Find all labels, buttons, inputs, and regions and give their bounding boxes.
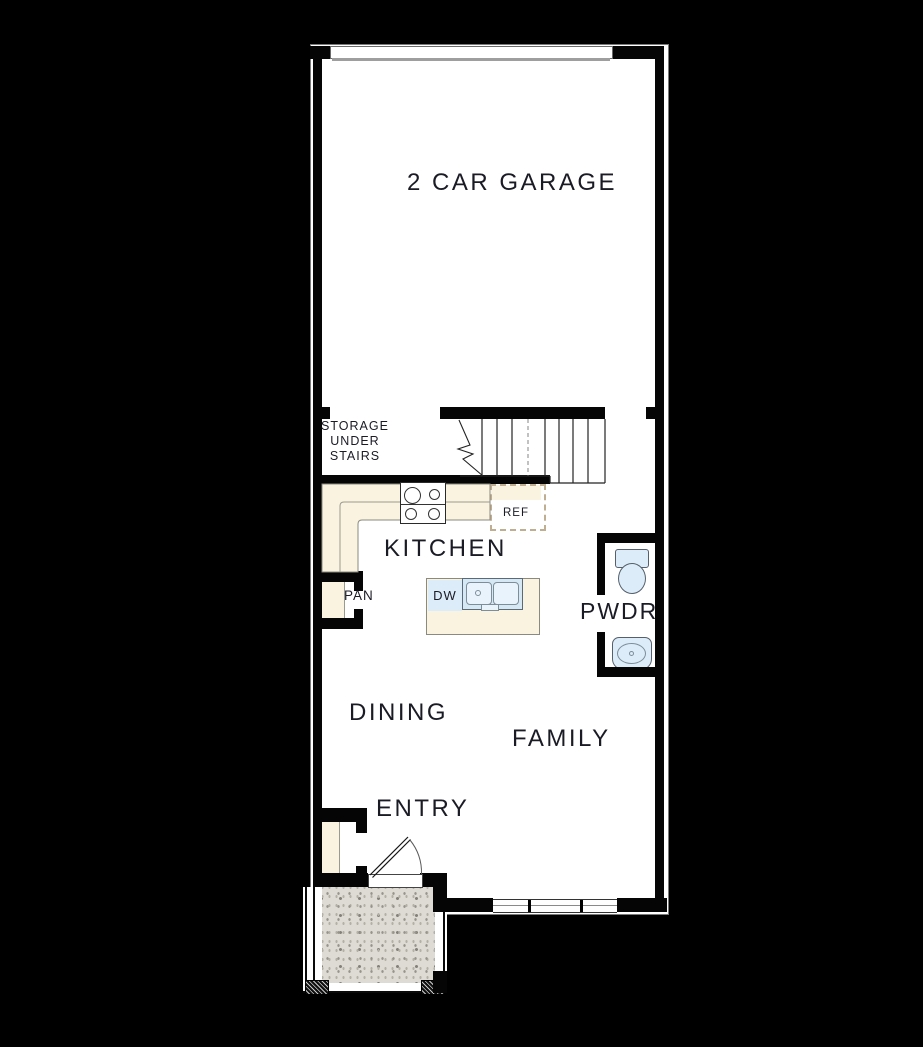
garage-label: 2 CAR GARAGE [407,169,617,197]
entry-label: ENTRY [376,795,469,823]
window-mullion-left [528,900,531,912]
porch-post-left [305,980,329,995]
pantry-label: PAN [344,588,374,603]
storage-label-line2: UNDER [320,434,390,449]
burner [405,508,417,520]
kitchen-label: KITCHEN [384,535,507,563]
burner [404,487,421,504]
dishwasher: DW [428,580,462,611]
family-rear-wall-left [440,898,493,912]
storage-label-line1: STORAGE [320,419,390,434]
family-room-window [493,899,617,913]
entry-closet-jamb-top [356,822,367,833]
sink-drain [475,590,481,596]
stair-header-wall [440,407,605,419]
family-rear-wall-right [617,898,667,912]
exterior-wall-left [313,48,322,887]
porch-roof-line-left-outer [305,887,307,992]
sink-faucet [481,604,499,611]
window-glass-line [493,905,617,906]
family-label: FAMILY [512,725,611,753]
entry-closet-shelf [322,822,340,873]
pantry-jamb-bottom [354,609,363,618]
garage-rear-wall-stub-right [646,407,658,419]
entry-door-threshold [368,874,423,888]
toilet-bowl [618,563,646,594]
powder-wall-bottom [597,667,655,677]
sink-basin-right [493,582,519,605]
burner [428,508,440,520]
floor-plan-canvas: REF DW 2 CAR GARAGE STORAGE UNDER STAIRS… [0,0,923,1047]
pantry-shelf [322,582,345,618]
garage-door-panel-line [332,58,610,61]
dishwasher-label: DW [433,588,457,603]
burner [429,489,440,500]
refrigerator-label: REF [490,507,542,519]
porch-roof-line-left-inner [313,887,315,992]
porch-corner-block [433,971,447,993]
powder-wall-left-upper [597,533,605,595]
powder-sink-drain [629,651,634,656]
garage-rear-wall-stub-left [313,407,330,419]
front-porch [303,887,447,993]
pantry-wall-bottom [322,618,363,629]
entry-closet-wall-top [313,808,367,822]
storage-label: STORAGE UNDER STAIRS [320,419,390,464]
porch-concrete-texture [322,887,435,983]
pantry-wall-top [322,571,363,582]
dining-label: DINING [349,699,448,727]
porch-edge-line-right [443,912,445,973]
window-mullion-right [580,900,583,912]
entry-front-wall-left [313,873,368,887]
garage-front-wall-left [310,46,330,59]
exterior-wall-right [655,46,664,912]
powder-label: PWDR [580,598,658,625]
cooktop-divider [401,504,445,505]
powder-wall-top [597,533,655,543]
cooktop [400,482,446,524]
storage-label-line3: STAIRS [320,449,390,464]
